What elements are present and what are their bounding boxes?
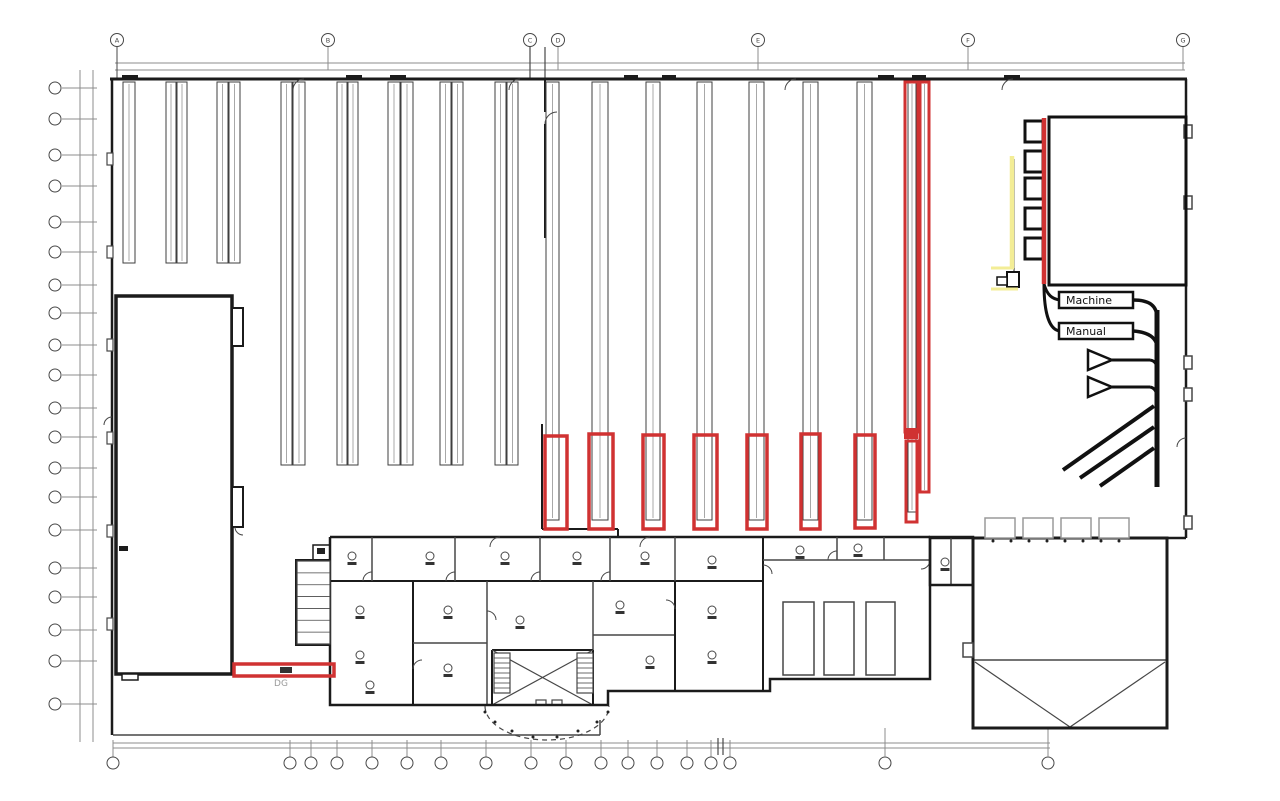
marker-dot — [1064, 540, 1067, 543]
wall-feature — [119, 546, 128, 551]
desk-table — [444, 674, 453, 677]
wall-feature — [878, 75, 894, 80]
desk-chair — [641, 552, 649, 560]
plan-path — [666, 600, 675, 609]
grid-bubble-label: E — [756, 36, 760, 44]
machine-label: Machine — [1066, 294, 1112, 307]
wall-feature — [662, 75, 676, 80]
desk-table — [348, 562, 357, 565]
grid-bubble-bottom — [724, 757, 736, 769]
plan-path — [531, 572, 540, 581]
desk-chair — [646, 656, 654, 664]
grid-bubble-bottom — [107, 757, 119, 769]
desk-chair — [516, 616, 524, 624]
plan-path — [1150, 360, 1157, 372]
grid-bubble-bottom — [622, 757, 634, 769]
grid-bubble-left — [49, 402, 61, 414]
plan-rect — [783, 602, 814, 675]
marker-dot — [1082, 540, 1085, 543]
desk-chair — [573, 552, 581, 560]
marker-dot — [1118, 540, 1121, 543]
annotation-text: DG — [274, 679, 288, 689]
grid-bubble-label: C — [528, 36, 533, 44]
plan-path — [487, 611, 496, 620]
plan-rect — [973, 538, 1167, 728]
wall-line — [1070, 662, 1165, 727]
desk-chair — [616, 601, 624, 609]
marker-dot — [1010, 540, 1013, 543]
grid-bubble-left — [49, 491, 61, 503]
plan-rect — [1025, 151, 1043, 172]
storage-racks-layer — [123, 82, 928, 520]
plan-rect — [107, 525, 113, 537]
plan-rect — [1025, 178, 1043, 199]
plan-path — [1133, 300, 1157, 318]
desk-chair — [854, 544, 862, 552]
plan-rect — [107, 153, 113, 165]
marker-dot — [596, 721, 599, 724]
desk-table — [573, 562, 582, 565]
desk-chair — [366, 681, 374, 689]
desk-table — [356, 616, 365, 619]
plan-rect — [107, 618, 113, 630]
grid-bubble-left — [49, 307, 61, 319]
grid-bubble-label: B — [326, 36, 330, 44]
grid-bubble-left — [49, 180, 61, 192]
grid-bubble-bottom — [595, 757, 607, 769]
grid-bubble-label: F — [966, 36, 970, 44]
grid-bubble-bottom — [480, 757, 492, 769]
grid-bubble-left — [49, 279, 61, 291]
grid-bubble-left — [49, 369, 61, 381]
grid-bubble-bottom — [401, 757, 413, 769]
grid-bubble-left — [49, 591, 61, 603]
wall-feature — [912, 75, 926, 80]
plan-path — [1177, 438, 1186, 447]
desk-chair — [426, 552, 434, 560]
desk-table — [708, 616, 717, 619]
plan-rect — [1184, 516, 1192, 529]
plan-rect — [107, 339, 113, 351]
plan-rect — [1099, 518, 1129, 538]
desk-chair — [796, 546, 804, 554]
marker-dot — [532, 736, 535, 739]
manual-label: Manual — [1066, 325, 1106, 338]
plan-path — [763, 565, 772, 574]
plan-path — [601, 572, 610, 581]
plan-path — [640, 537, 650, 547]
floor-plan-page: ABCDEFGDG Machine Manual — [0, 0, 1280, 801]
labels-layer: Machine Manual — [1059, 292, 1133, 339]
wall-feature — [122, 75, 138, 80]
plan-path — [1002, 79, 1013, 90]
grid-bubble-left — [49, 113, 61, 125]
desk-chair — [501, 552, 509, 560]
grid-bubble-bottom — [560, 757, 572, 769]
plan-rect — [1023, 518, 1053, 538]
plan-rect — [1049, 117, 1186, 285]
desk-chair — [348, 552, 356, 560]
plan-rect — [1025, 121, 1043, 142]
desk-table — [646, 666, 655, 669]
grid-bubble-bottom — [705, 757, 717, 769]
plan-rect — [122, 674, 138, 680]
marker-dot — [1046, 540, 1049, 543]
plan-path — [828, 551, 837, 560]
grid-bubble-left — [49, 339, 61, 351]
grid-bubble-bottom — [681, 757, 693, 769]
desk-table — [708, 566, 717, 569]
plan-rect — [997, 277, 1007, 285]
grid-bubble-left — [49, 524, 61, 536]
marker-dot — [992, 540, 995, 543]
desk-chair — [708, 651, 716, 659]
desk-table — [941, 568, 950, 571]
plan-path — [490, 537, 500, 547]
grid-bubble-bottom — [879, 757, 891, 769]
wall-feature — [317, 548, 325, 554]
plan-path — [1133, 331, 1157, 345]
grid-bubble-left — [49, 82, 61, 94]
desk-chair — [444, 606, 452, 614]
desk-chair — [708, 556, 716, 564]
grid-bubble-bottom — [435, 757, 447, 769]
marker-dot — [577, 730, 580, 733]
wall-feature — [390, 75, 406, 80]
plan-rect — [232, 308, 243, 346]
grid-bubble-left — [49, 216, 61, 228]
grid-bubble-left — [49, 462, 61, 474]
plan-path — [235, 527, 243, 535]
desk-table — [356, 661, 365, 664]
desk-table — [854, 554, 863, 557]
grid-bubble-bottom — [651, 757, 663, 769]
plan-rect — [1061, 518, 1091, 538]
desk-table — [426, 562, 435, 565]
desk-chair — [444, 664, 452, 672]
plan-path — [363, 572, 372, 581]
grid-bubble-left — [49, 562, 61, 574]
plan-path — [413, 660, 422, 669]
plan-rect — [1184, 388, 1192, 401]
plan-path — [1088, 350, 1112, 370]
plan-rect — [1025, 238, 1043, 259]
grid-bubble-left — [49, 431, 61, 443]
grid-bubble-label: G — [1180, 36, 1185, 44]
marker-dot — [511, 730, 514, 733]
plan-rect — [963, 643, 973, 657]
marker-dot — [556, 736, 559, 739]
grid-bubble-left — [49, 624, 61, 636]
plan-path — [446, 572, 455, 581]
wall-line — [1100, 448, 1154, 486]
plan-rect — [1184, 356, 1192, 369]
wall-feature — [624, 75, 638, 80]
desk-table — [366, 691, 375, 694]
grid-bubble-left — [49, 149, 61, 161]
desk-table — [444, 616, 453, 619]
plan-rect — [985, 518, 1015, 538]
grid-bubble-left — [49, 698, 61, 710]
desk-chair — [356, 651, 364, 659]
grid-bubble-left — [49, 655, 61, 667]
desk-table — [796, 556, 805, 559]
grid-bubble-left — [49, 246, 61, 258]
red-joint — [904, 428, 918, 439]
grid-bubble-bottom — [305, 757, 317, 769]
grid-bubble-label: D — [555, 36, 560, 44]
desk-table — [501, 562, 510, 565]
plan-path — [785, 79, 796, 90]
grid-bubble-bottom — [1042, 757, 1054, 769]
machine-zone-layer — [991, 156, 1018, 289]
desk-chair — [356, 606, 364, 614]
plan-rect — [116, 296, 232, 674]
marker-dot — [484, 711, 487, 714]
plan-rect — [824, 602, 854, 675]
desk-table — [516, 626, 525, 629]
grid-bubble-bottom — [525, 757, 537, 769]
marker-dot — [1100, 540, 1103, 543]
plan-rect — [107, 246, 113, 258]
plan-rect — [866, 602, 895, 675]
grid-bubble-label: A — [115, 36, 120, 44]
marker-dot — [1028, 540, 1031, 543]
red-bar-mark — [280, 667, 292, 673]
stair-block — [297, 561, 330, 644]
plan-rect — [1025, 208, 1043, 229]
marker-dot — [607, 711, 610, 714]
grid-bubble-bottom — [331, 757, 343, 769]
plan-path — [1088, 377, 1112, 397]
marker-dot — [494, 721, 497, 724]
desk-table — [708, 661, 717, 664]
plan-path — [921, 560, 930, 569]
building-walls-layer — [80, 47, 1192, 757]
wall-feature — [346, 75, 362, 80]
desk-chair — [708, 606, 716, 614]
desk-table — [641, 562, 650, 565]
plan-rect — [107, 432, 113, 444]
grid-bubble-bottom — [284, 757, 296, 769]
grid-bubble-bottom — [366, 757, 378, 769]
wall-line — [975, 662, 1070, 727]
plan-rect — [1007, 272, 1019, 287]
desk-table — [616, 611, 625, 614]
desk-chair — [941, 558, 949, 566]
floor-plan-canvas: ABCDEFGDG Machine Manual — [0, 0, 1280, 801]
plan-rect — [232, 487, 243, 527]
